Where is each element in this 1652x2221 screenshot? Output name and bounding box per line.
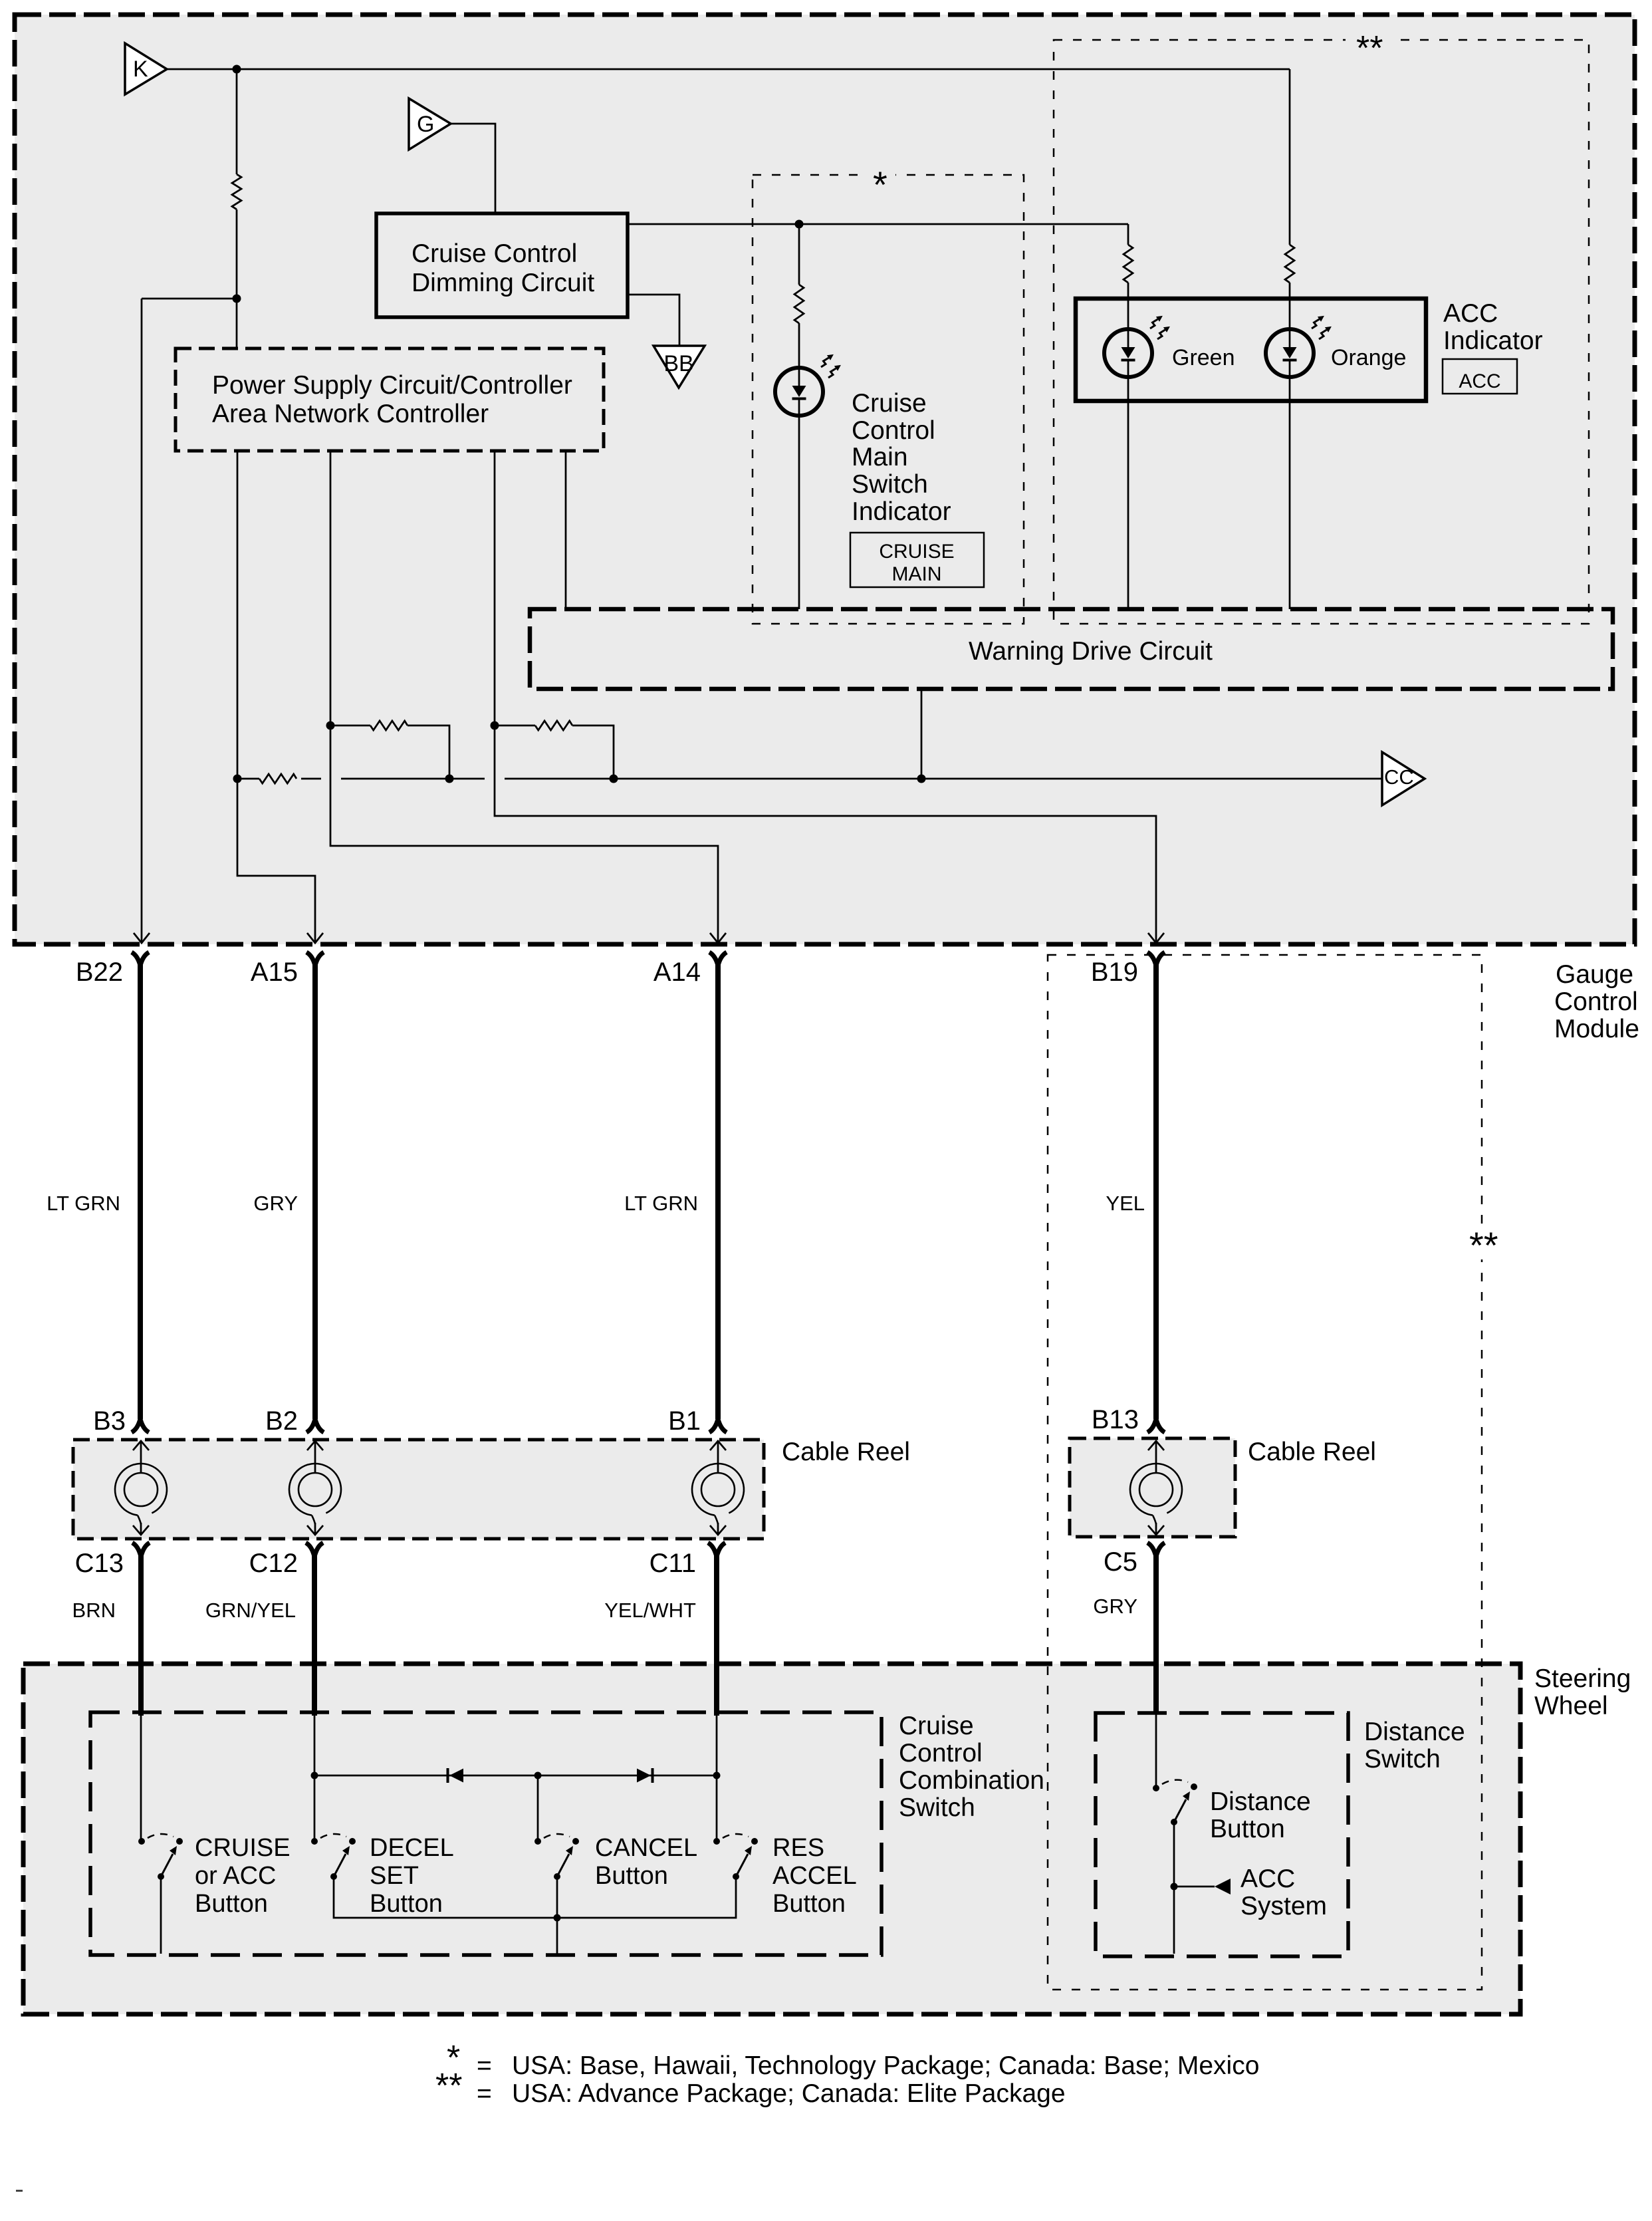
svg-text:System: System [1240,1892,1327,1920]
svg-text:USA: Advance Package; Canada:: USA: Advance Package; Canada: Elite Pack… [512,2079,1066,2108]
svg-text:RES: RES [772,1834,824,1862]
svg-text:CRUISE: CRUISE [879,541,954,563]
svg-text:B1: B1 [668,1406,701,1436]
svg-text:GRY: GRY [1093,1595,1137,1618]
svg-text:G: G [417,112,434,137]
svg-text:Steering: Steering [1534,1664,1631,1693]
svg-text:Module: Module [1554,1015,1639,1043]
svg-text:Cruise Control: Cruise Control [412,239,577,268]
svg-text:A15: A15 [251,958,298,987]
svg-text:K: K [133,57,148,82]
svg-text:DECEL: DECEL [370,1834,454,1862]
svg-text:Main: Main [852,443,908,471]
svg-text:Control: Control [1554,987,1638,1016]
svg-text:A14: A14 [653,958,701,987]
svg-text:Distance: Distance [1364,1718,1465,1746]
svg-text:BRN: BRN [72,1599,116,1622]
svg-text:B19: B19 [1091,958,1138,987]
svg-text:Button: Button [1210,1815,1285,1843]
svg-text:**: ** [1469,1224,1498,1266]
svg-text:BB: BB [663,351,693,376]
svg-text:Combination: Combination [899,1766,1044,1795]
svg-text:Cable Reel: Cable Reel [1248,1438,1376,1466]
svg-text:USA: Base, Hawaii, Technology: USA: Base, Hawaii, Technology Package; C… [512,2051,1259,2080]
svg-text:Power Supply Circuit/Controlle: Power Supply Circuit/Controller [212,371,572,400]
svg-text:Button: Button [370,1890,443,1918]
svg-text:Indicator: Indicator [1443,327,1543,355]
svg-text:or ACC: or ACC [195,1862,276,1890]
svg-text:Green: Green [1172,345,1235,370]
svg-text:C12: C12 [249,1549,298,1578]
svg-text:Cable Reel: Cable Reel [782,1438,910,1466]
svg-text:CRUISE: CRUISE [195,1834,291,1862]
svg-text:Area Network Controller: Area Network Controller [212,400,489,428]
svg-text:Switch: Switch [1364,1745,1441,1773]
svg-text:B3: B3 [93,1406,126,1436]
svg-text:Orange: Orange [1331,345,1406,370]
svg-text:LT GRN: LT GRN [624,1192,698,1215]
svg-text:Wheel: Wheel [1534,1692,1608,1720]
svg-text:Button: Button [595,1862,668,1890]
svg-text:=: = [477,2051,492,2080]
svg-text:**: ** [435,2067,462,2105]
svg-text:ACC: ACC [1459,370,1500,392]
svg-text:Distance: Distance [1210,1787,1311,1816]
svg-text:CC: CC [1384,765,1414,789]
svg-text:ACC: ACC [1240,1865,1295,1893]
svg-text:C13: C13 [75,1549,124,1578]
svg-text:*: * [873,164,887,205]
svg-text:Button: Button [772,1890,846,1918]
svg-text:SET: SET [370,1862,419,1890]
svg-text:Gauge: Gauge [1556,960,1633,989]
svg-text:GRN/YEL: GRN/YEL [205,1599,296,1622]
svg-text:ACCEL: ACCEL [772,1862,857,1890]
svg-text:Indicator: Indicator [852,497,951,526]
svg-text:B22: B22 [76,958,123,987]
svg-text:Switch: Switch [899,1793,975,1822]
svg-text:B2: B2 [265,1406,298,1436]
svg-text:YEL: YEL [1106,1192,1145,1215]
svg-text:=: = [477,2079,492,2108]
svg-text:MAIN: MAIN [892,563,942,585]
svg-text:Control: Control [899,1739,983,1767]
svg-text:ACC: ACC [1443,299,1498,328]
svg-text:Switch: Switch [852,470,928,499]
svg-text:Warning Drive Circuit: Warning Drive Circuit [969,637,1213,666]
svg-text:B13: B13 [1092,1405,1139,1434]
svg-text:GRY: GRY [253,1192,298,1215]
svg-text:C11: C11 [649,1549,696,1578]
svg-text:Cruise: Cruise [852,389,927,418]
svg-text:YEL/WHT: YEL/WHT [604,1599,696,1622]
svg-text:Cruise: Cruise [899,1712,974,1740]
svg-text:C5: C5 [1104,1547,1137,1577]
svg-text:Button: Button [195,1890,268,1918]
svg-text:CANCEL: CANCEL [595,1834,697,1862]
svg-text:Control: Control [852,416,935,445]
svg-text:Dimming Circuit: Dimming Circuit [412,269,594,297]
svg-text:LT GRN: LT GRN [47,1192,120,1215]
svg-text:**: ** [1356,29,1383,68]
